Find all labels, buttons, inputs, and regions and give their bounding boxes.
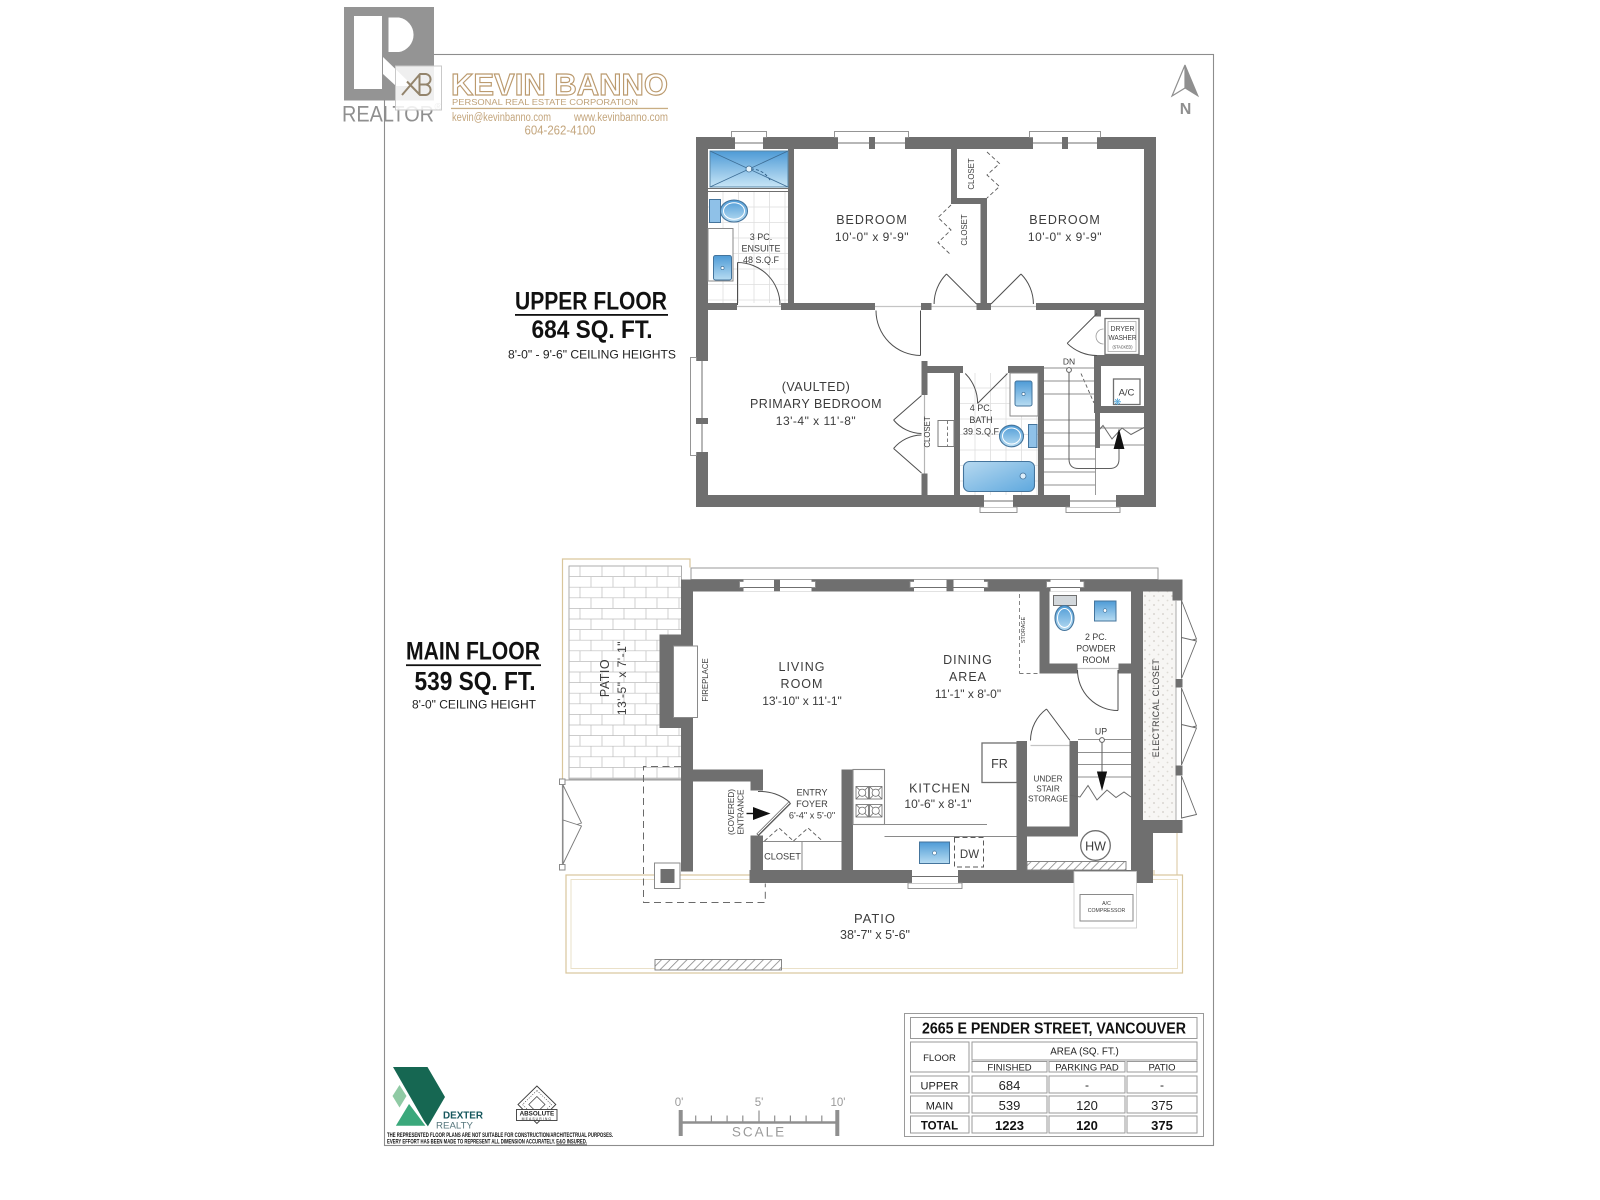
svg-text:539: 539 — [999, 1098, 1021, 1113]
svg-text:BEDROOM: BEDROOM — [836, 213, 908, 227]
svg-text:CLOSET: CLOSET — [923, 416, 932, 447]
svg-text:PATIO: PATIO — [598, 659, 612, 697]
svg-text:375: 375 — [1151, 1118, 1173, 1133]
svg-text:HW: HW — [1085, 840, 1106, 854]
svg-text:N: N — [1180, 101, 1192, 118]
svg-text:120: 120 — [1076, 1098, 1098, 1113]
svg-text:-: - — [1160, 1078, 1164, 1092]
svg-text:ENTRANCE: ENTRANCE — [737, 789, 746, 835]
svg-text:COMPRESSOR: COMPRESSOR — [1088, 908, 1126, 914]
svg-text:TOTAL: TOTAL — [921, 1121, 958, 1133]
svg-text:MEASURING: MEASURING — [522, 1117, 552, 1121]
svg-text:13'-10" x 11'-1": 13'-10" x 11'-1" — [762, 694, 842, 708]
svg-text:STAIR: STAIR — [1036, 785, 1060, 794]
svg-text:604-262-4100: 604-262-4100 — [525, 123, 596, 138]
svg-text:DRYER: DRYER — [1111, 324, 1135, 333]
svg-text:10'-0" x 9'-9": 10'-0" x 9'-9" — [835, 230, 909, 244]
svg-text:WASHER: WASHER — [1109, 333, 1137, 342]
svg-text:10'-6" x 8'-1": 10'-6" x 8'-1" — [904, 797, 971, 811]
svg-text:8'-0" - 9'-6" CEILING HEIGHTS: 8'-0" - 9'-6" CEILING HEIGHTS — [508, 348, 676, 362]
svg-text:ELECTRICAL CLOSET: ELECTRICAL CLOSET — [1151, 659, 1161, 758]
svg-text:AREA: AREA — [949, 670, 987, 684]
svg-text:ENSUITE: ENSUITE — [741, 244, 780, 254]
svg-text:MAIN: MAIN — [926, 1101, 954, 1113]
svg-text:FIREPLACE: FIREPLACE — [701, 658, 710, 701]
svg-text:38'-7" x 5'-6": 38'-7" x 5'-6" — [840, 928, 910, 942]
svg-text:THE REPRESENTED FLOOR PLANS AR: THE REPRESENTED FLOOR PLANS ARE NOT SUIT… — [387, 1133, 613, 1139]
svg-text:UP: UP — [1095, 727, 1107, 737]
svg-text:EVERY EFFORT HAS BEEN MADE TO: EVERY EFFORT HAS BEEN MADE TO REPRESENT … — [387, 1140, 587, 1146]
svg-text:DW: DW — [960, 849, 979, 861]
svg-text:STORAGE: STORAGE — [1028, 795, 1068, 804]
svg-text:FLOOR: FLOOR — [923, 1053, 956, 1064]
svg-text:48 S.Q.F: 48 S.Q.F — [743, 255, 780, 265]
svg-text:UPPER: UPPER — [921, 1081, 959, 1093]
svg-text:REALTY: REALTY — [436, 1121, 474, 1132]
svg-text:ROOM: ROOM — [781, 677, 824, 691]
svg-text:5': 5' — [755, 1097, 764, 1109]
svg-text:3 PC.: 3 PC. — [750, 232, 773, 242]
svg-text:KITCHEN: KITCHEN — [909, 782, 971, 796]
svg-text:120: 120 — [1076, 1118, 1098, 1133]
svg-text:0': 0' — [675, 1097, 684, 1109]
svg-text:10': 10' — [831, 1097, 846, 1109]
svg-text:STORAGE: STORAGE — [1021, 616, 1027, 643]
svg-text:-: - — [1085, 1078, 1089, 1092]
svg-text:13'-4" x 11'-8": 13'-4" x 11'-8" — [776, 414, 856, 428]
svg-text:FR: FR — [991, 757, 1008, 771]
svg-text:8'-0" CEILING HEIGHT: 8'-0" CEILING HEIGHT — [412, 698, 537, 712]
svg-text:684 SQ. FT.: 684 SQ. FT. — [532, 316, 653, 344]
svg-text:A/C: A/C — [1102, 901, 1111, 907]
svg-text:ROOM: ROOM — [1082, 655, 1109, 665]
svg-text:4 PC.: 4 PC. — [970, 403, 993, 413]
svg-text:1223: 1223 — [995, 1118, 1024, 1133]
svg-text:10'-0" x 9'-9": 10'-0" x 9'-9" — [1028, 230, 1102, 244]
svg-text:FINISHED: FINISHED — [987, 1063, 1031, 1074]
svg-text:DN: DN — [1063, 357, 1075, 367]
svg-text:DINING: DINING — [943, 653, 993, 667]
svg-text:POWDER: POWDER — [1076, 644, 1116, 654]
svg-text:MAIN FLOOR: MAIN FLOOR — [406, 638, 540, 666]
svg-text:2665 E PENDER STREET, VANCOUVE: 2665 E PENDER STREET, VANCOUVER — [922, 1021, 1186, 1038]
svg-text:(STACKED): (STACKED) — [1113, 345, 1133, 350]
svg-text:11'-1" x 8'-0": 11'-1" x 8'-0" — [935, 687, 1001, 701]
svg-text:PERSONAL REAL ESTATE CORPORATI: PERSONAL REAL ESTATE CORPORATION — [452, 97, 638, 107]
svg-text:PATIO: PATIO — [1148, 1063, 1175, 1074]
svg-text:CLOSET: CLOSET — [764, 852, 801, 862]
svg-text:PARKING PAD: PARKING PAD — [1055, 1063, 1119, 1074]
svg-text:FOYER: FOYER — [796, 799, 828, 809]
svg-text:PATIO: PATIO — [854, 911, 896, 926]
svg-text:❋: ❋ — [1114, 397, 1122, 407]
svg-text:CLOSET: CLOSET — [967, 158, 976, 189]
svg-text:PRIMARY BEDROOM: PRIMARY BEDROOM — [750, 397, 882, 411]
svg-text:539 SQ. FT.: 539 SQ. FT. — [415, 668, 536, 696]
svg-text:(COVERED): (COVERED) — [727, 789, 736, 835]
svg-text:ENTRY: ENTRY — [797, 788, 828, 798]
svg-text:13'-5" x 7'-1": 13'-5" x 7'-1" — [615, 641, 629, 715]
svg-text:CLOSET: CLOSET — [960, 214, 969, 245]
svg-text:BATH: BATH — [969, 415, 992, 425]
svg-text:UNDER: UNDER — [1033, 775, 1062, 784]
svg-text:375: 375 — [1151, 1098, 1173, 1113]
svg-text:AREA (SQ. FT.): AREA (SQ. FT.) — [1050, 1047, 1119, 1058]
svg-text:BEDROOM: BEDROOM — [1029, 213, 1101, 227]
svg-text:(VAULTED): (VAULTED) — [782, 380, 851, 394]
svg-text:39 S.Q.F: 39 S.Q.F — [963, 427, 1000, 437]
svg-text:LIVING: LIVING — [779, 660, 826, 674]
svg-text:6'-4" x 5'-0": 6'-4" x 5'-0" — [789, 811, 835, 821]
svg-text:SCALE: SCALE — [732, 1125, 786, 1140]
svg-text:2 PC.: 2 PC. — [1085, 632, 1107, 642]
svg-text:684: 684 — [999, 1078, 1021, 1093]
svg-text:UPPER FLOOR: UPPER FLOOR — [515, 288, 667, 316]
